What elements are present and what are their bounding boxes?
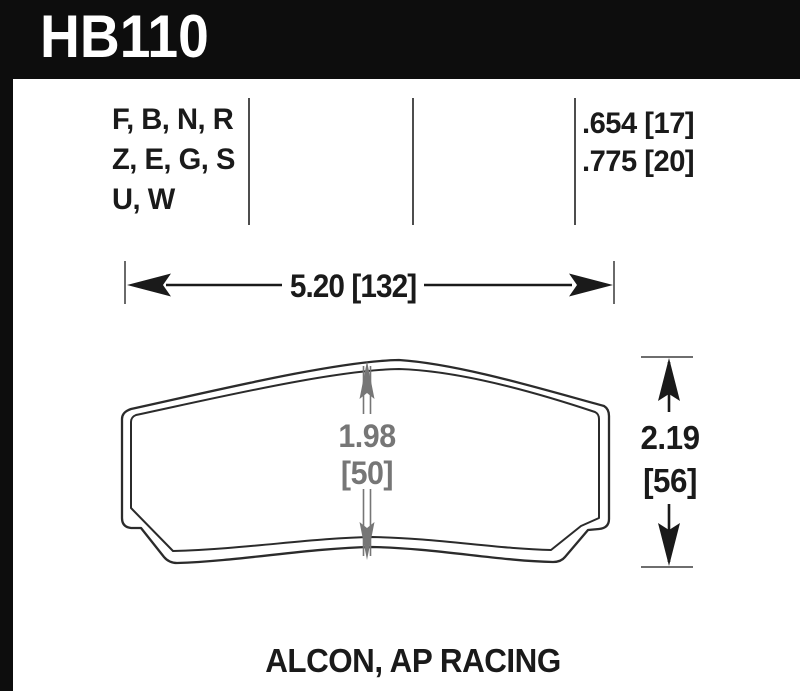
pad-technical-drawing (0, 0, 800, 691)
height-dimension-inches: 2.19 (640, 421, 699, 454)
width-dim-arrow-right-icon (569, 274, 613, 297)
center-dimension-mm: [50] (341, 457, 393, 489)
center-dim-arrow-down-icon (360, 522, 375, 560)
brake-pad-spec-sheet: HB110 F, B, N, R Z, E, G, S U, W .654 [1… (0, 0, 800, 691)
center-dim-arrow-up-icon (360, 361, 375, 399)
width-dim-arrow-left-icon (127, 274, 171, 297)
center-dimension-inches: 1.98 (338, 420, 395, 452)
height-dimension-mm: [56] (643, 464, 697, 497)
caliper-application-label: ALCON, AP RACING (265, 644, 560, 677)
width-dimension-label: 5.20 [132] (290, 270, 416, 302)
